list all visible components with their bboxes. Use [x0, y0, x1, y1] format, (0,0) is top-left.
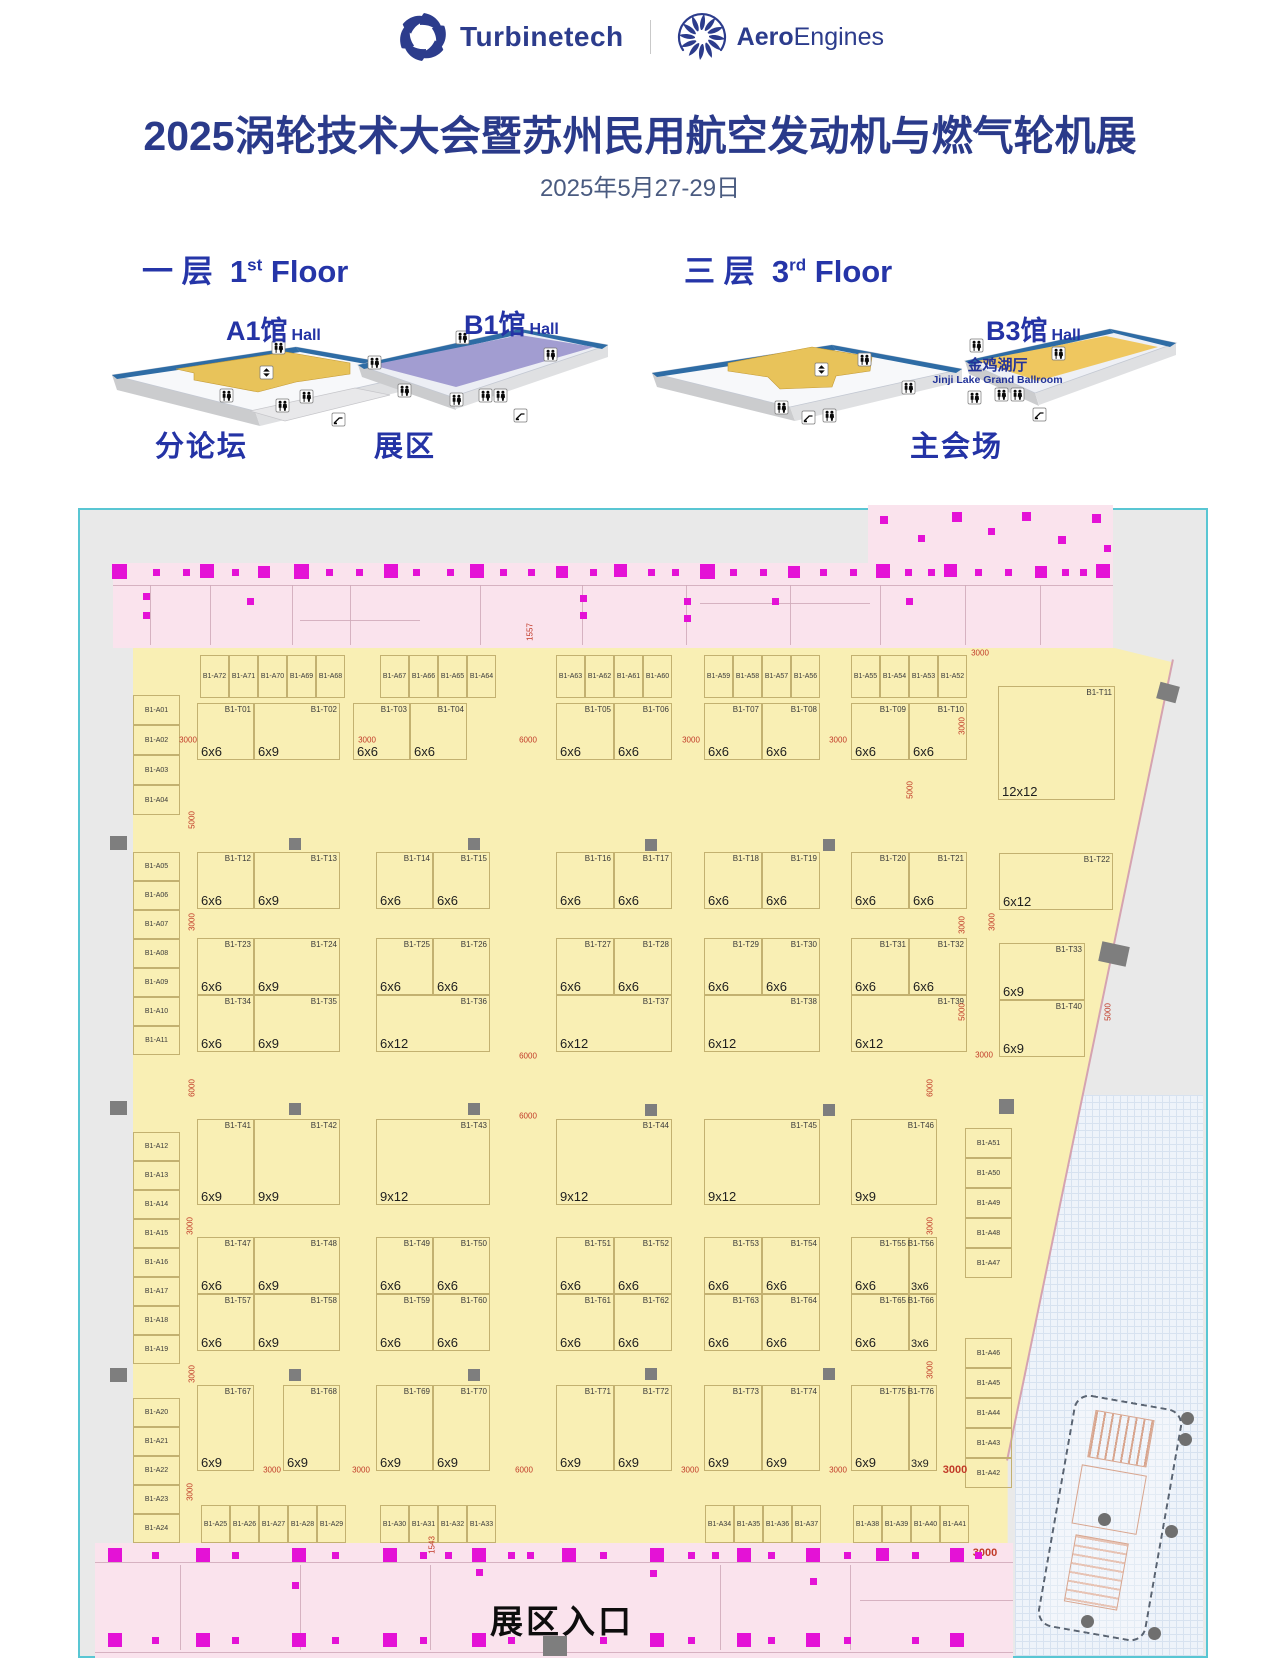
- decor-line: [180, 1565, 181, 1650]
- decor-line: [850, 1565, 851, 1650]
- decor-line: [965, 585, 966, 645]
- turbinetech-wordmark: Turbinetech: [460, 21, 624, 53]
- header-logos: Turbinetech AeroEngines: [0, 10, 1280, 64]
- aeroengines-wordmark: AeroEngines: [737, 23, 884, 52]
- ballroom-label: 金鸡湖厅Jinji Lake Grand Ballroom: [905, 357, 1090, 386]
- decor-line: [720, 1565, 721, 1650]
- zone-label-main-venue: 主会场: [910, 423, 1003, 465]
- corridor-top-right: [868, 505, 1113, 565]
- decor-line: [880, 585, 881, 645]
- turbinetech-logo-icon: [396, 10, 450, 64]
- corridor-top: [113, 563, 1113, 648]
- decor-line: [300, 620, 420, 621]
- decor-line: [210, 585, 211, 645]
- hall-b1-label: B1馆Hall: [464, 303, 559, 342]
- decor-line: [300, 1565, 301, 1650]
- hall-b3-label: B3馆Hall: [986, 309, 1081, 348]
- room-outline: [1071, 1464, 1146, 1535]
- decor-line: [1040, 585, 1041, 645]
- zone-label-exhibition: 展区: [374, 423, 436, 465]
- decor-line: [700, 603, 870, 604]
- entrance-label: 展区入口: [462, 1595, 662, 1643]
- decor-line: [860, 1600, 1013, 1601]
- decor-line: [582, 585, 583, 645]
- decor-line: [430, 1565, 431, 1650]
- zone-label-forum: 分论坛: [155, 423, 248, 465]
- decor-line: [790, 585, 791, 645]
- escalator-well: [1064, 1534, 1129, 1610]
- hall-a1-label: A1馆Hall: [226, 309, 321, 348]
- logo-divider: [650, 20, 651, 54]
- page-title: 2025涡轮技术大会暨苏州民用航空发动机与燃气轮机展: [0, 102, 1280, 162]
- event-date: 2025年5月27-29日: [0, 168, 1280, 203]
- aeroengines-logo-icon: [677, 12, 727, 62]
- stairs-icon: [1087, 1410, 1154, 1468]
- aeroengines-brand: AeroEngines: [677, 12, 884, 62]
- decor-line: [480, 585, 481, 645]
- decor-line: [292, 585, 293, 645]
- decor-line: [95, 1562, 1013, 1563]
- decor-line: [113, 585, 1113, 586]
- decor-line: [350, 585, 351, 645]
- page: { "header": { "brand1": "Turbinetech", "…: [0, 0, 1280, 1658]
- decor-line: [686, 585, 687, 645]
- decor-line: [95, 1652, 1013, 1653]
- turbinetech-brand: Turbinetech: [396, 10, 624, 64]
- decor-line: [150, 585, 151, 645]
